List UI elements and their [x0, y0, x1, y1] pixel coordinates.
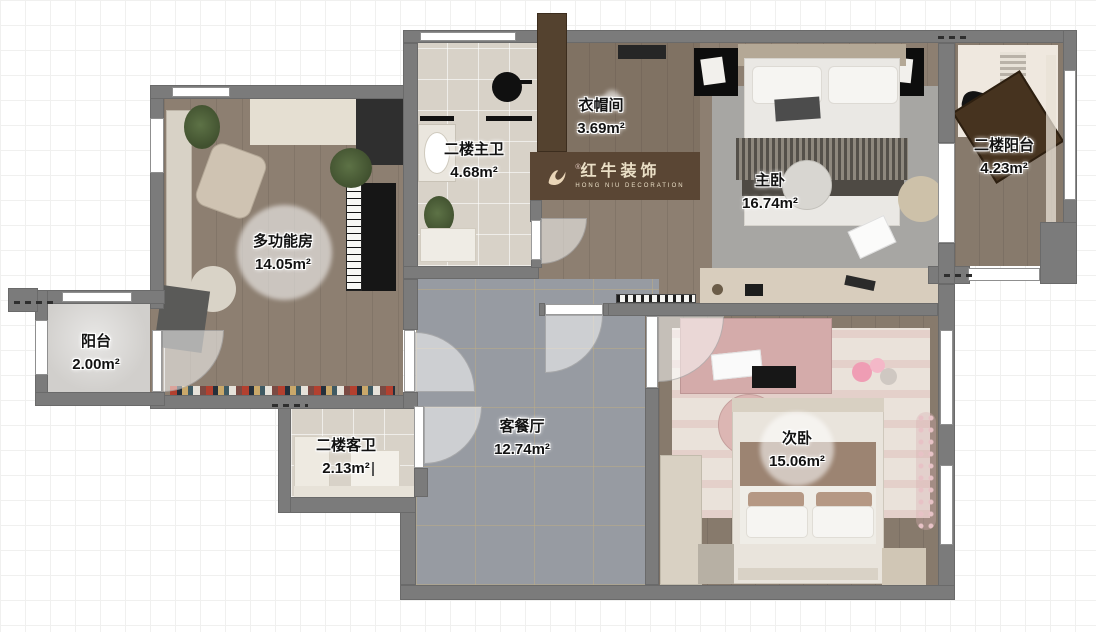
bath-cabinet — [420, 228, 476, 262]
wardrobe — [660, 455, 702, 585]
room-area: 15.06m² — [769, 450, 825, 473]
window — [968, 268, 1040, 281]
room-name: 阳台 — [72, 330, 120, 353]
dresser — [700, 268, 938, 304]
clothes-rack — [618, 45, 666, 59]
room-label-cloakroom: 衣帽间 3.69m² — [577, 94, 625, 141]
wall — [8, 288, 38, 312]
piano-keys — [346, 183, 362, 291]
bull-icon — [545, 164, 569, 188]
plant — [330, 148, 372, 188]
window — [150, 118, 164, 173]
brand-name: 红牛装饰 — [581, 163, 661, 180]
plant — [184, 105, 220, 149]
bed-tray — [774, 96, 820, 121]
shower-arm — [518, 80, 532, 84]
door-leaf — [646, 316, 658, 388]
wall — [608, 303, 938, 316]
pendant-lamp — [852, 362, 872, 382]
threshold-dashes — [938, 36, 970, 39]
window — [940, 330, 953, 425]
door-leaf — [414, 406, 424, 468]
floor-plan: ®红牛装饰 HONG NIU DECORATION 多功能房 14.05m² 阳… — [0, 0, 1096, 632]
room-label-upper-balcony: 二楼阳台 4.23m² — [974, 134, 1034, 181]
wall — [1040, 222, 1077, 284]
pendant-lamp — [880, 368, 897, 385]
door-leaf — [531, 220, 541, 260]
threshold-dashes — [14, 301, 58, 304]
bed-footboard — [738, 568, 878, 580]
window — [1064, 70, 1076, 200]
wall — [645, 388, 659, 585]
radiator — [616, 294, 696, 303]
room-label-multi-function: 多功能房 14.05m² — [253, 230, 313, 277]
threshold-dashes — [272, 404, 308, 407]
brand-subtitle: HONG NIU DECORATION — [575, 183, 684, 189]
brand-logo-band: ®红牛装饰 HONG NIU DECORATION — [530, 152, 700, 200]
window — [940, 465, 953, 545]
towel-bar — [486, 116, 532, 121]
pillow — [746, 506, 808, 538]
canopy-beam — [732, 398, 884, 412]
room-name: 多功能房 — [253, 230, 313, 253]
room-label-balcony: 阳台 2.00m² — [72, 330, 120, 377]
dresser-decor — [745, 284, 763, 296]
room-area: 2.00m² — [72, 353, 120, 376]
window — [420, 32, 516, 41]
door-leaf — [404, 330, 415, 392]
pillow — [812, 506, 874, 538]
room-name: 客餐厅 — [494, 415, 550, 438]
door-leaf — [545, 304, 603, 315]
wall — [400, 585, 955, 600]
window — [938, 143, 955, 243]
wall — [35, 392, 165, 406]
room-label-living-dining: 客餐厅 12.74m² — [494, 415, 550, 462]
bookshelf — [170, 386, 395, 395]
wall — [938, 43, 955, 143]
flower-decor — [916, 412, 936, 530]
room-name: 主卧 — [742, 169, 798, 192]
wall — [403, 279, 418, 330]
room-label-master-bedroom: 主卧 16.74m² — [742, 169, 798, 216]
room-area: 3.69m² — [577, 117, 625, 140]
room-name: 二楼阳台 — [974, 134, 1034, 157]
room-area: 16.74m² — [742, 192, 798, 215]
room-name: 二楼主卫 — [444, 138, 504, 161]
room-label-second-bedroom: 次卧 15.06m² — [769, 427, 825, 474]
window — [172, 87, 230, 97]
room-area: 2.13m² — [316, 457, 376, 480]
room-area: 12.74m² — [494, 438, 550, 461]
tatami-mat — [250, 99, 356, 145]
threshold-dashes — [944, 274, 972, 277]
wall — [403, 43, 418, 279]
nightstand-decor — [700, 57, 725, 86]
laptop — [752, 366, 796, 388]
nightstand — [882, 548, 926, 586]
room-area: 4.23m² — [974, 157, 1034, 180]
dresser-decor — [712, 284, 723, 295]
wall — [414, 468, 428, 497]
wall — [278, 395, 291, 513]
towel-bar — [420, 116, 454, 121]
room-name: 二楼客卫 — [316, 434, 376, 457]
window — [62, 292, 132, 302]
wall — [938, 243, 955, 284]
curtain — [1046, 55, 1056, 245]
room-label-master-bath: 二楼主卫 4.68m² — [444, 138, 504, 185]
room-label-guest-bath: 二楼客卫 2.13m² — [316, 434, 376, 481]
door-leaf — [152, 330, 162, 392]
room-name: 衣帽间 — [577, 94, 625, 117]
piano — [362, 183, 396, 291]
room-name: 次卧 — [769, 427, 825, 450]
shower-head — [492, 72, 522, 102]
pillow — [828, 66, 898, 104]
counter — [294, 486, 416, 497]
room-area: 14.05m² — [253, 253, 313, 276]
wall — [278, 497, 416, 513]
room-area: 4.68m² — [444, 161, 504, 184]
nightstand — [698, 544, 734, 584]
wardrobe-partition — [537, 13, 567, 152]
wall — [403, 266, 539, 279]
window — [35, 320, 48, 375]
brand-text: ®红牛装饰 HONG NIU DECORATION — [575, 164, 684, 189]
